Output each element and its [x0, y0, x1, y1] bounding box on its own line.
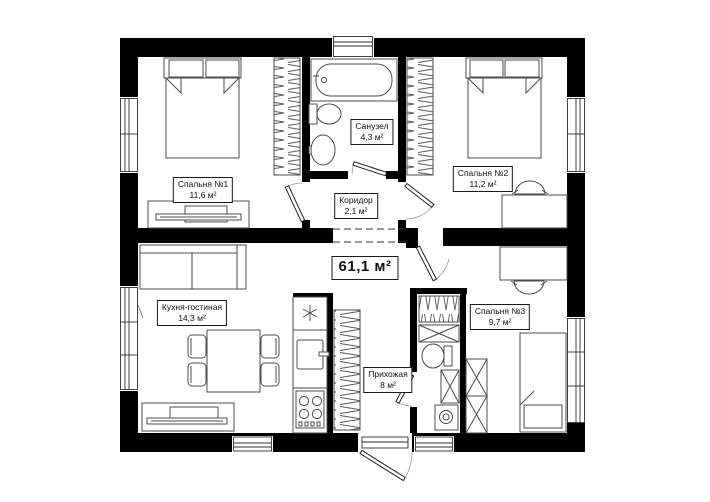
room-area: 2,1 м² [339, 206, 373, 217]
window-bedroom1 [119, 97, 139, 173]
room-name: Кухня-гостиная [162, 302, 222, 312]
single-bed-bedroom3 [520, 333, 566, 432]
wardrobe-bedroom1 [274, 58, 300, 175]
room-name: Спальня №2 [458, 168, 508, 178]
room-label-bedroom2: Спальня №2 11,2 м² [453, 166, 513, 192]
dining-table [207, 330, 260, 392]
window-wc-bottom [414, 436, 454, 453]
window-bedroom2 [566, 97, 586, 173]
room-label-bedroom3: Спальня №3 9,7 м² [470, 304, 530, 330]
floor-plan-canvas: Спальня №1 11,6 м² Санузел 4,3 м² Спальн… [0, 0, 710, 502]
window-bathroom-top [332, 35, 374, 58]
door-bedroom2 [405, 184, 434, 219]
desk-bedroom3 [500, 247, 567, 294]
room-label-hallway: Прихожая 8 м² [363, 367, 412, 393]
washbasin-bathroom [309, 135, 335, 165]
bathtub [311, 59, 397, 101]
coat-rack [419, 296, 459, 322]
entrance-door [358, 433, 412, 481]
double-bed-bedroom2 [466, 58, 542, 158]
total-area-label: 61,1 м² [332, 256, 399, 280]
room-name: Спальня №3 [475, 306, 525, 316]
stove [296, 391, 324, 428]
room-name: Прихожая [368, 369, 407, 379]
room-area: 9,7 м² [475, 317, 525, 328]
sofa [140, 245, 246, 289]
tv-console-bedroom1 [148, 201, 249, 228]
double-bed-bedroom1 [164, 58, 241, 158]
room-name: Санузел [355, 121, 388, 131]
floor-plan-drawing [0, 0, 710, 502]
room-area: 11,2 м² [458, 179, 508, 190]
washing-machine [435, 405, 458, 430]
room-area: 4,3 м² [355, 132, 388, 143]
window-bedroom3 [566, 317, 586, 423]
wardrobe-hallway [334, 310, 360, 430]
window-kitchen-bottom [232, 436, 273, 453]
room-area: 8 м² [368, 380, 407, 391]
door-bedroom3 [416, 246, 449, 281]
room-area: 14,3 м² [162, 313, 222, 324]
room-name: Коридор [339, 195, 373, 205]
room-label-corridor: Коридор 2,1 м² [334, 193, 378, 219]
cabinet-x-wc [441, 370, 459, 403]
tv-console-living [142, 403, 234, 431]
window-kitchen-left [119, 286, 143, 391]
shelf-cabinet-x [419, 325, 459, 342]
wardrobe-bedroom2 [407, 58, 433, 175]
room-label-kitchen-living: Кухня-гостиная 14,3 м² [157, 300, 227, 326]
room-name: Спальня №1 [178, 179, 228, 189]
toilet-bathroom [309, 104, 341, 124]
room-label-bedroom1: Спальня №1 11,6 м² [173, 177, 233, 203]
room-area: 11,6 м² [178, 190, 228, 201]
room-label-bathroom: Санузел 4,3 м² [350, 119, 393, 145]
toilet-wc [422, 344, 452, 368]
wardrobe-bedroom3 [466, 359, 487, 433]
